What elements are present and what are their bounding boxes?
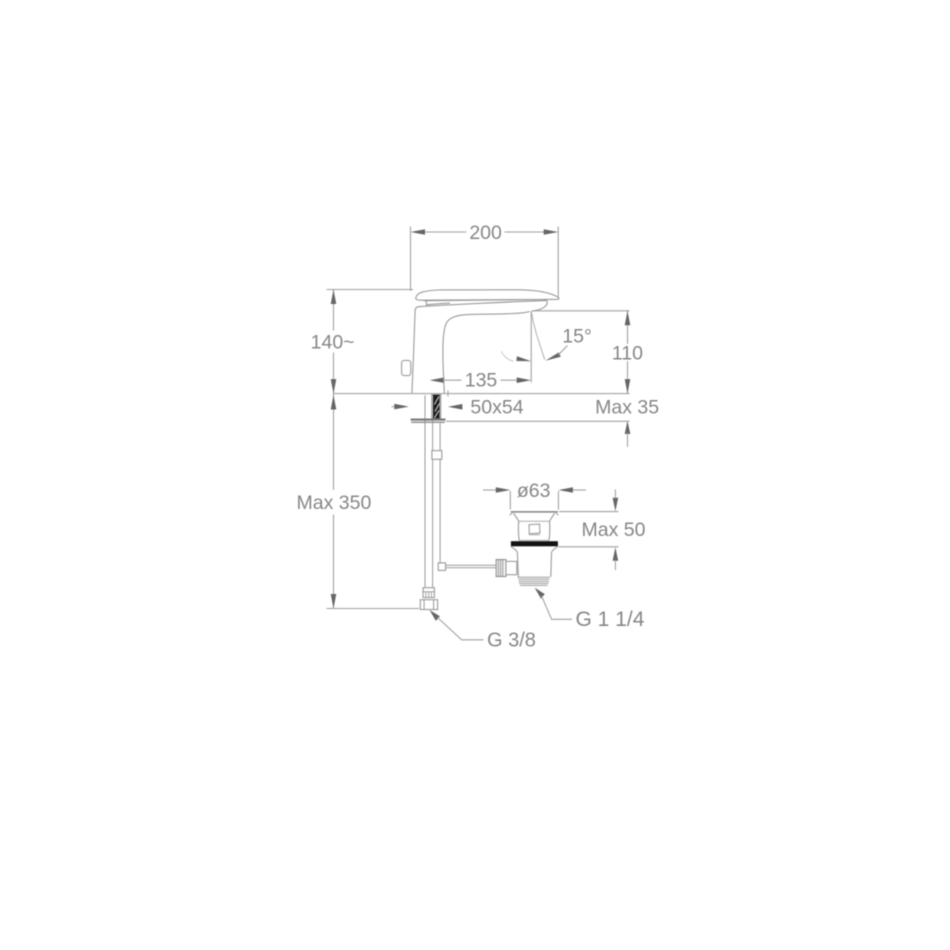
svg-text:110: 110 [612, 342, 643, 364]
svg-text:G 3/8: G 3/8 [487, 629, 536, 651]
svg-text:140~: 140~ [311, 331, 355, 353]
svg-text:Max 35: Max 35 [595, 397, 659, 419]
svg-text:Max 50: Max 50 [582, 519, 646, 541]
svg-text:ø63: ø63 [517, 480, 551, 502]
svg-text:Max 350: Max 350 [297, 492, 372, 514]
svg-text:G 1 1/4: G 1 1/4 [576, 608, 645, 631]
svg-text:135: 135 [465, 369, 498, 391]
svg-text:50x54: 50x54 [470, 397, 523, 419]
svg-text:15°: 15° [562, 326, 592, 348]
svg-text:200: 200 [469, 222, 502, 244]
